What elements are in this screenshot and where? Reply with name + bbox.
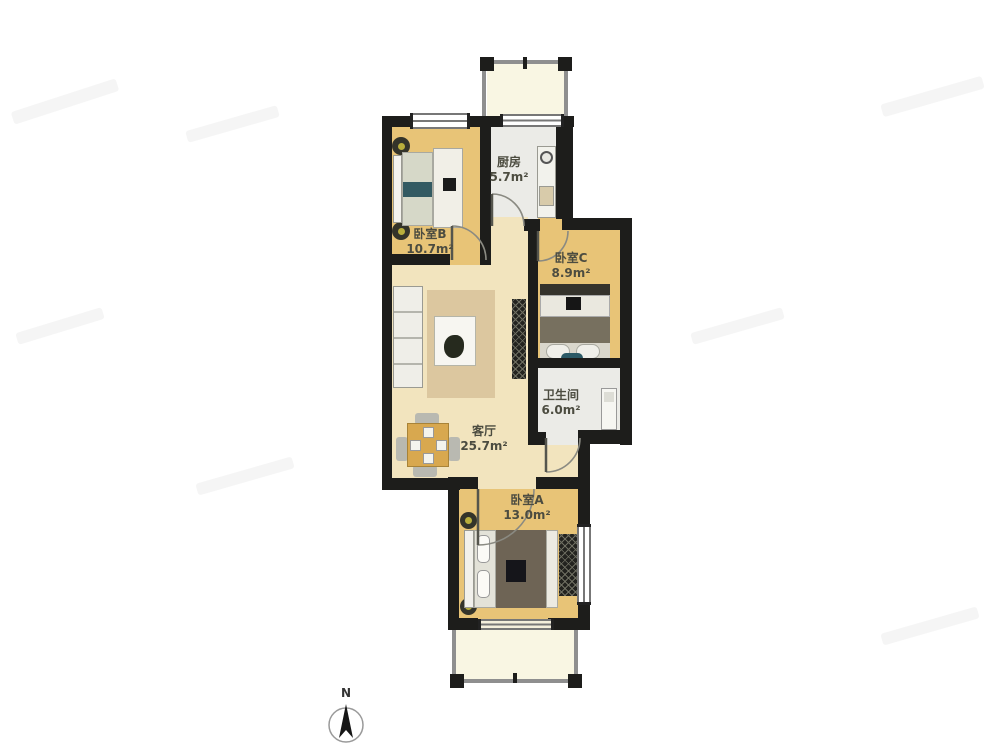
room-area: 25.7m² xyxy=(460,439,507,454)
room-name: 卫生间 xyxy=(541,388,580,403)
window xyxy=(410,113,470,129)
door-arc xyxy=(546,438,580,472)
compass-rose-icon xyxy=(320,700,372,746)
room-name: 厨房 xyxy=(489,155,528,170)
room-area: 6.0m² xyxy=(541,403,580,418)
room-area: 8.9m² xyxy=(551,266,590,281)
door-swing-layer xyxy=(0,0,1000,750)
compass-north-label: N xyxy=(320,686,372,700)
room-label-living-room: 客厅 25.7m² xyxy=(460,424,507,454)
room-name: 卧室B xyxy=(406,227,453,242)
window xyxy=(577,524,591,605)
compass: N xyxy=(320,686,372,746)
room-area: 5.7m² xyxy=(489,170,528,185)
room-name: 客厅 xyxy=(460,424,507,439)
room-label-bedroom-c: 卧室C 8.9m² xyxy=(551,251,590,281)
room-label-bedroom-b: 卧室B 10.7m² xyxy=(406,227,453,257)
door-arc xyxy=(492,194,524,226)
room-name: 卧室C xyxy=(551,251,590,266)
balcony-slider xyxy=(500,114,564,127)
room-name: 卧室A xyxy=(503,493,550,508)
room-area: 10.7m² xyxy=(406,242,453,257)
door-arc xyxy=(452,226,486,260)
balcony-slider xyxy=(478,619,554,630)
room-area: 13.0m² xyxy=(503,508,550,523)
room-label-bathroom: 卫生间 6.0m² xyxy=(541,388,580,418)
room-label-kitchen: 厨房 5.7m² xyxy=(489,155,528,185)
floor-plan-image: 厨房 5.7m² 卧室B 10.7m² 卧室C 8.9m² 卫生间 6.0m² … xyxy=(0,0,1000,750)
room-label-bedroom-a: 卧室A 13.0m² xyxy=(503,493,550,523)
